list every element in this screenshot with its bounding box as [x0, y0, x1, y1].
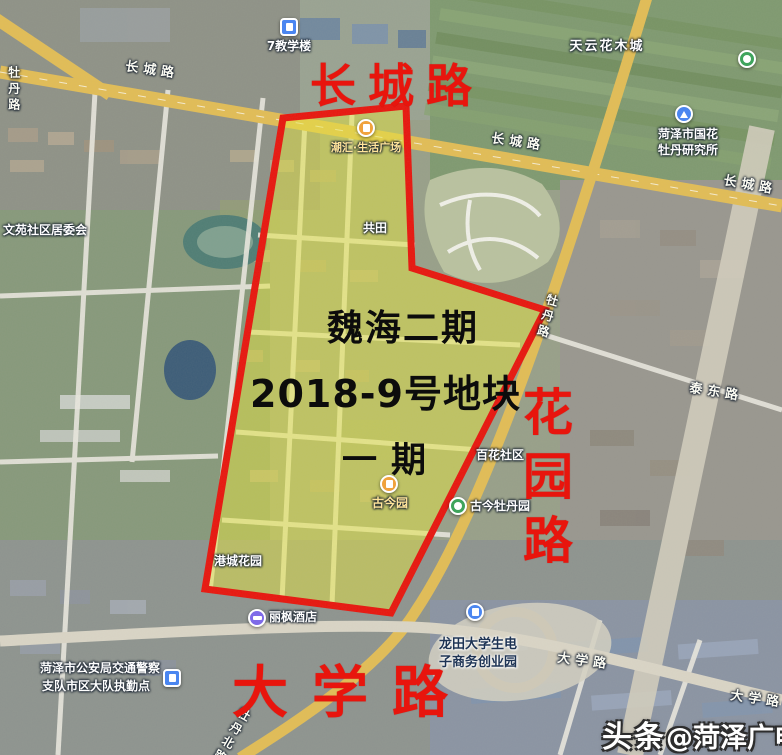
poi-jiaoxuelou: 7教学楼: [267, 40, 311, 54]
watermark-brand: 头条: [602, 720, 666, 755]
police-building-icon: [163, 669, 181, 687]
poi-traffic-police-line2: 支队市区大队执勤点: [42, 680, 150, 694]
peony-park-icon: [449, 497, 467, 515]
poi-wenyuan-committee: 文苑社区居委会: [3, 224, 87, 238]
parcel-title-line2: 2018-9号地块: [250, 363, 521, 418]
annotation-road-daxue: 大学路: [232, 648, 472, 729]
poi-shenghuo-guangchang: 潮汇·生活广场: [331, 142, 401, 155]
parcel-title-line3: 一期: [342, 432, 440, 483]
poi-peony-institute-line2: 牡丹研究所: [658, 144, 718, 158]
poi-gongtian: 共田: [363, 222, 387, 236]
hotel-bed-icon: [248, 609, 266, 627]
watermark-handle: @菏泽广电网: [666, 723, 782, 754]
park-tree-icon: [738, 50, 756, 68]
annotation-road-changcheng: 长城路: [310, 50, 484, 116]
poi-gangcheng-huayuan: 港城花园: [214, 555, 262, 569]
road-label-mudan-northwest: 牡丹路: [6, 66, 20, 114]
poi-tianyun-huamucheng: 天云花木城: [569, 40, 644, 55]
parcel-title-line1: 魏海二期: [327, 299, 479, 351]
poi-lifeng-hotel: 丽枫酒店: [269, 611, 317, 625]
research-flask-icon: [675, 105, 693, 123]
watermark: 头条@菏泽广电网: [602, 712, 782, 755]
company-icon: [466, 603, 484, 621]
poi-peony-institute-line1: 菏泽市国花: [658, 128, 718, 142]
poi-traffic-police-line1: 菏泽市公安局交通警察: [40, 662, 160, 676]
mall-icon: [357, 119, 375, 137]
poi-gujin-garden: 古今园: [372, 497, 408, 511]
annotated-satellite-map: 长城路 长城路 长城路 牡丹路 牡丹路 泰东路 大学路 大学路 牡丹北路 7教学…: [0, 0, 782, 755]
school-building-icon: [280, 18, 298, 36]
